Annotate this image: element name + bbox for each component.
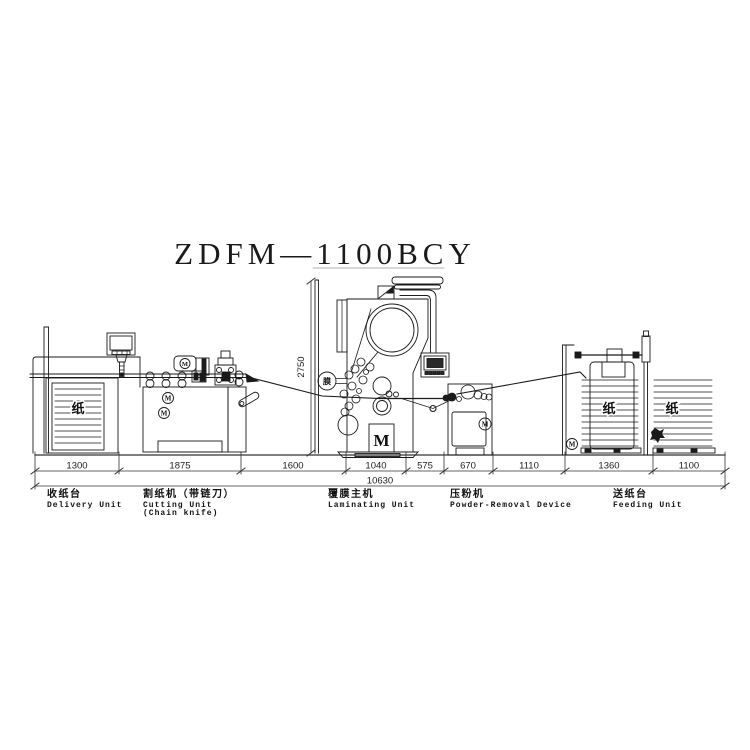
model-title: ZDFM—1100BCY [174,236,476,271]
motor-glyph: M [373,431,389,450]
paper-stack-right: 纸 [650,380,715,453]
right-tower [642,336,650,362]
monitor-pole-base [121,373,124,376]
powder-inner-box [452,412,486,446]
powder-removal-drawing: M [443,384,492,455]
dim-1300: 1300 [66,461,87,472]
feeding-label-en: Feeding Unit [613,501,683,510]
label-feeding-unit: 送纸台 Feeding Unit [612,487,683,510]
paper-glyph: 纸 [71,401,84,416]
laminating-label-zh: 覆膜主机 [328,487,374,500]
diagram-canvas: ZDFM—1100BCY 1300 1875 1600 1040 575 670… [0,0,750,750]
press-roller-core [377,401,388,412]
chain-knife-assembly [215,351,236,385]
pallet-block [614,449,620,452]
dim-575: 575 [417,461,433,472]
powder-rollers [443,385,492,402]
machine-layout-diagram: ZDFM—1100BCY 1300 1875 1600 1040 575 670… [0,0,750,750]
height-dimension [307,278,315,456]
cutting-main-box [143,387,228,452]
delivery-paper-stack [52,383,104,450]
motor-glyph: M [182,361,188,368]
left-post [315,280,319,453]
heating-drum-inner [370,308,414,352]
label-laminating-unit: 覆膜主机 Laminating Unit [328,487,415,510]
dim-total: 10630 [367,476,393,487]
motor-glyph: M [165,395,172,403]
web-from-feeder [457,372,586,394]
hinge-flag [387,287,393,293]
paper-stack-lines [55,389,101,443]
motor-glyph: M [161,410,168,418]
conveyor-rail [30,374,246,378]
paper-glyph: 纸 [602,401,615,416]
label-powder-device: 压粉机 Powder-Removal Device [450,487,572,510]
dim-1360: 1360 [598,461,619,472]
delivery-label-en: Delivery Unit [47,501,122,510]
top-beam [392,277,443,284]
operator-panel [421,353,449,377]
monitor-key-lines [117,351,127,355]
paper-glyph: 纸 [665,401,678,416]
web-to-cutter [252,378,380,399]
film-roll-bracket [336,379,347,384]
film-glyph: 膜 [323,376,331,386]
bracket-bar [202,359,206,374]
cutting-pedestal [158,441,222,452]
dim-1110: 1110 [519,461,539,472]
cutter-blade [200,373,205,381]
dim-1040: 1040 [365,461,386,472]
cutting-label-zh: 割纸机（带链刀） [143,487,235,500]
figure-marker-icon [650,428,665,443]
cutting-unit-drawing: M M M [140,351,260,452]
powder-label-zh: 压粉机 [450,487,485,500]
label-cutting-unit: 割纸机（带链刀） Cutting Unit (Chain knife) [143,487,235,518]
laminator-body [347,299,428,452]
dim-1100: 1100 [679,461,699,472]
pallet-block [585,449,591,452]
feeding-label-zh: 送纸台 [612,487,648,500]
laminating-label-en: Laminating Unit [328,501,415,510]
powder-base [456,448,484,455]
motor-glyph: M [482,421,489,429]
lever-arm [238,391,261,408]
cutter-blade [194,373,198,380]
cutting-right-tower [228,387,246,452]
delivery-label-zh: 收纸台 [47,487,82,500]
pallet-block [691,449,697,452]
dim-1600: 1600 [282,461,303,472]
suction-head-box [602,362,625,377]
monitor-stand-top [116,355,127,362]
unit-labels: 收纸台 Delivery Unit 割纸机（带链刀） Cutting Unit … [47,487,683,518]
monitor-pole-lines [120,366,125,370]
bar-end-block [575,352,581,358]
press-roller-top [373,377,391,395]
feeder-right-frame [644,362,648,455]
control-monitor [107,333,135,377]
delivery-unit-drawing: 纸 [30,327,246,453]
guide-roller-cluster [340,358,374,416]
monitor-screen [110,336,132,350]
heating-drum-outer [366,304,418,356]
label-delivery-unit: 收纸台 Delivery Unit [47,487,122,510]
cutting-label-en2: (Chain knife) [143,509,218,518]
dimension-values: 1300 1875 1600 1040 575 670 1110 1360 11… [66,461,699,487]
top-beam-inner [395,285,441,289]
web-roller [394,392,399,397]
dim-2750: 2750 [296,356,307,377]
lower-roller [338,415,358,435]
press-roller-bottom [373,397,391,415]
motor-glyph: M [569,441,576,449]
laminating-unit-drawing: 膜 M [313,268,449,458]
bar-end-block [633,352,639,358]
powder-label-en: Powder-Removal Device [450,501,572,510]
feeding-unit-drawing: M 纸 [563,331,651,455]
dim-1875: 1875 [169,461,190,472]
pallet-block [657,449,663,452]
dim-670: 670 [460,461,476,472]
